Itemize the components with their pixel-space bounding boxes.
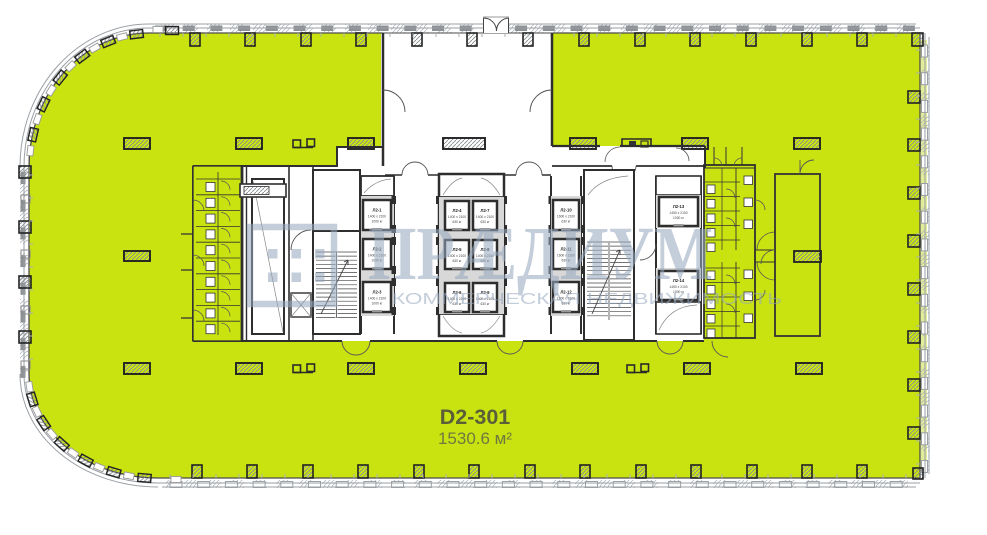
svg-text:ПРÆДИУМ: ПРÆДИУМ bbox=[368, 212, 713, 296]
svg-text:1400 х 2100: 1400 х 2100 bbox=[368, 297, 386, 301]
svg-text:КОММЕРЧЕСКАЯ НЕДВИЖИМОСТЬ: КОММЕРЧЕСКАЯ НЕДВИЖИМОСТЬ bbox=[392, 291, 782, 308]
svg-text:1530.6 м²: 1530.6 м² bbox=[438, 429, 512, 448]
svg-text:D2-301: D2-301 bbox=[440, 405, 511, 429]
svg-text:Л2-13: Л2-13 bbox=[673, 204, 685, 209]
svg-text:1000 кг: 1000 кг bbox=[372, 302, 384, 306]
